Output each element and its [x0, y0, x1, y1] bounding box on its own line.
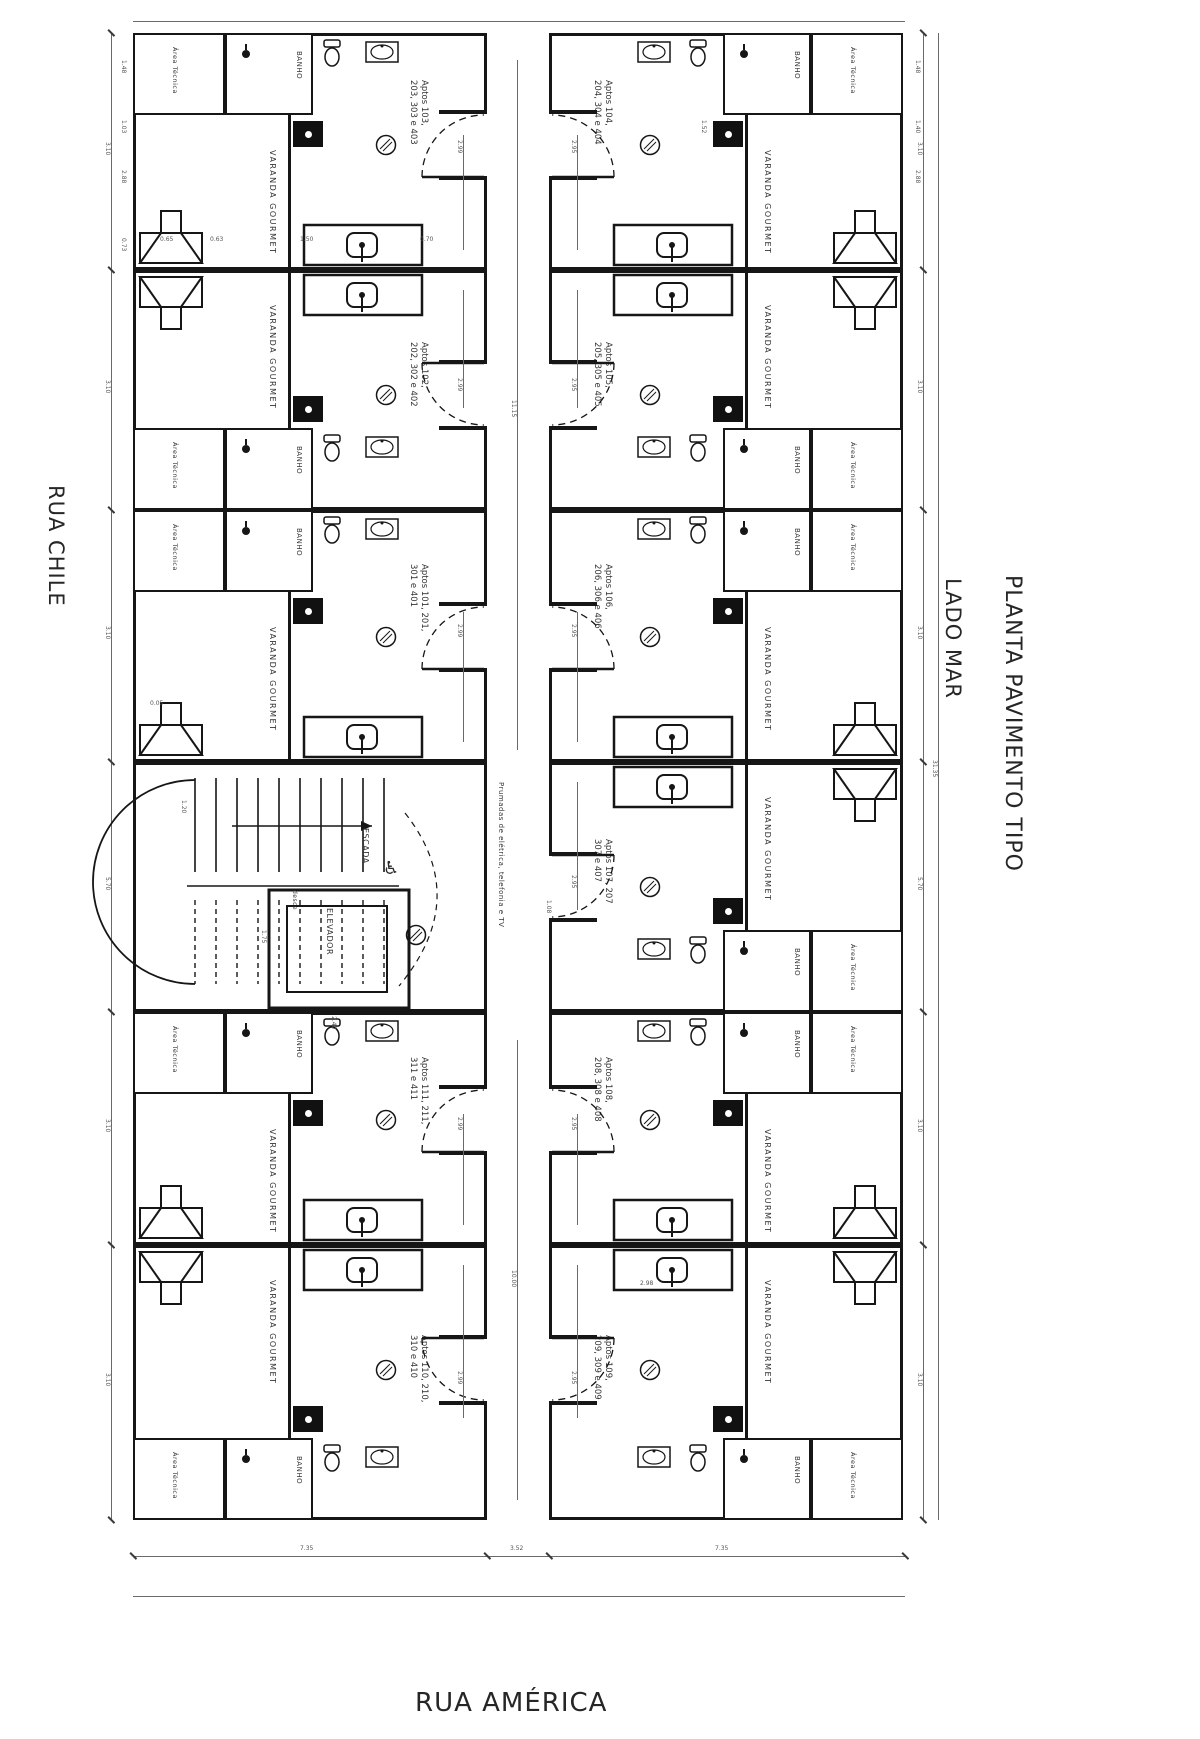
grill-icon: [833, 700, 897, 756]
dim-value-step: 0.73: [120, 238, 127, 251]
area-tecnica-room: [811, 1012, 903, 1094]
counter-sink-icon: [303, 224, 423, 266]
area-tecnica-room: [133, 510, 225, 592]
sink-icon: [637, 1020, 671, 1042]
unit-dim-value: 2.99: [456, 140, 463, 153]
counter-sink-icon: [613, 274, 733, 316]
unit-dim-line: [463, 290, 464, 408]
stairs-elevator-drawing: [137, 768, 487, 1012]
corridor-dim-line-upper: [517, 60, 518, 750]
shower-icon: [239, 438, 253, 454]
area-tecnica-room: [811, 1438, 903, 1520]
area-tecnica-label: Área Técnica: [171, 47, 179, 94]
door-swing-arc: [414, 1085, 484, 1155]
area-tecnica-room: [133, 33, 225, 115]
dim-elev-w: 2.40: [330, 1016, 337, 1029]
area-tecnica-label: Área Técnica: [171, 1452, 179, 1499]
toilet-icon: [687, 936, 709, 966]
side-label-lado-mar: LADO MAR: [941, 578, 965, 699]
shower-icon: [737, 940, 751, 956]
banho-label: BANHO: [295, 1030, 303, 1058]
banho-label: BANHO: [793, 528, 801, 556]
varanda-wall: [745, 762, 748, 930]
area-tecnica-label: Área Técnica: [171, 1026, 179, 1073]
varanda-gourmet-label: VARANDA GOURMET: [763, 797, 772, 901]
dim-value-overall: 31.35: [931, 760, 938, 777]
unit-dim-line: [577, 135, 578, 250]
door-swing-arc: [552, 360, 622, 430]
shaft-box: [713, 396, 743, 422]
unit-dim-value: 2.99: [456, 1371, 463, 1384]
varanda-wall: [288, 592, 291, 762]
varanda-wall: [288, 270, 291, 428]
counter-sink-icon: [613, 1199, 733, 1241]
varanda-gourmet-label: VARANDA GOURMET: [763, 1280, 772, 1384]
dim-value-left: 3.10: [104, 142, 111, 155]
door-tag-icon: [639, 876, 661, 898]
banho-label: BANHO: [295, 446, 303, 474]
dimension-line-bottom2: [133, 1596, 905, 1597]
door-swing-arc: [414, 1335, 484, 1405]
shower-icon: [239, 1022, 253, 1038]
sink-icon: [637, 518, 671, 540]
varanda-gourmet-label: VARANDA GOURMET: [268, 1129, 277, 1233]
varanda-wall: [745, 1094, 748, 1245]
dim-counter: 1.50: [300, 236, 313, 243]
dimension-line-top: [133, 21, 905, 22]
shaft-box: [713, 598, 743, 624]
dim-mid: 2.98: [640, 1280, 653, 1287]
grill-icon: [833, 276, 897, 332]
unit-dim-value: 2.99: [456, 1117, 463, 1130]
unit-dim-line: [577, 1114, 578, 1225]
door-swing-arc: [414, 110, 484, 180]
sink-icon: [365, 41, 399, 63]
area-tecnica-room: [133, 428, 225, 510]
area-tecnica-room: [811, 930, 903, 1012]
dim-value-tec-r: 1.40: [914, 120, 921, 133]
banho-label: BANHO: [295, 51, 303, 79]
counter-sink-icon: [613, 766, 733, 808]
shaft-box: [293, 598, 323, 624]
varanda-wall: [288, 115, 291, 270]
dim-value-left: 5.70: [104, 877, 111, 890]
area-tecnica-room: [133, 1012, 225, 1094]
dim-elev-d: 1.75: [260, 930, 267, 943]
sink-icon: [637, 938, 671, 960]
door-tag-icon: [375, 626, 397, 648]
toilet-icon: [687, 516, 709, 546]
riser-note: Prumadas de elétrica, telefonia e TV: [497, 782, 505, 927]
shaft-box: [713, 121, 743, 147]
unit-dim-line: [577, 290, 578, 408]
dimension-line-bottom: [133, 1556, 905, 1557]
corridor-dim-line-lower: [517, 1040, 518, 1500]
unit-dim-value: 2.95: [570, 624, 577, 637]
shaft-box: [713, 1406, 743, 1432]
shower-icon: [737, 520, 751, 536]
counter-sink-icon: [303, 1199, 423, 1241]
corridor-dim-b: 10.00: [510, 1270, 517, 1287]
varanda-gourmet-label: VARANDA GOURMET: [763, 305, 772, 409]
grill-icon: [833, 208, 897, 264]
shower-icon: [737, 1448, 751, 1464]
shaft-box: [293, 396, 323, 422]
area-tecnica-room: [811, 33, 903, 115]
toilet-icon: [321, 434, 343, 464]
door-tag-icon: [639, 134, 661, 156]
counter-sink-icon: [613, 1249, 733, 1291]
unit-dim-value: 2.95: [570, 140, 577, 153]
sink-icon: [637, 1446, 671, 1468]
shaft-box: [713, 1100, 743, 1126]
dim-value-left: 3.10: [104, 1119, 111, 1132]
area-tecnica-room: [811, 510, 903, 592]
varanda-gourmet-label: VARANDA GOURMET: [763, 1129, 772, 1233]
dim-grill-edge: 0.65: [160, 236, 173, 243]
door-tag-icon: [375, 1109, 397, 1131]
unit-dim-line: [577, 782, 578, 910]
shower-icon: [737, 1022, 751, 1038]
corridor-dim-a: 11.15: [510, 400, 517, 417]
dim-bottom-right: 7.35: [715, 1545, 728, 1552]
door-swing-arc: [552, 110, 622, 180]
dim-value-varanda: 2.88: [120, 170, 127, 183]
door-tag-icon: [639, 384, 661, 406]
dim-banho: 1.52: [700, 120, 707, 133]
banho-label: BANHO: [793, 948, 801, 976]
stair-label: ESCADA: [361, 828, 370, 864]
unit-dim-line: [577, 612, 578, 742]
shower-icon: [737, 438, 751, 454]
door-swing-arc: [414, 602, 484, 672]
dim-value-service-r: 1.48: [914, 60, 921, 73]
area-tecnica-label: Área Técnica: [849, 1026, 857, 1073]
varanda-gourmet-label: VARANDA GOURMET: [268, 305, 277, 409]
grill-icon: [139, 1251, 203, 1307]
banho-label: BANHO: [295, 1456, 303, 1484]
dim-stair: 1.20: [180, 800, 187, 813]
drawing-title: PLANTA PAVIMENTO TIPO: [1000, 575, 1025, 872]
area-tecnica-label: Área Técnica: [849, 944, 857, 991]
sink-icon: [637, 436, 671, 458]
shaft-box: [293, 121, 323, 147]
dim-value-left: 3.10: [104, 380, 111, 393]
area-tecnica-label: Área Técnica: [849, 1452, 857, 1499]
door-swing-arc: [552, 1085, 622, 1155]
counter-sink-icon: [303, 274, 423, 316]
unit-dim-value: 2.99: [456, 378, 463, 391]
counter-sink-icon: [613, 224, 733, 266]
banho-label: BANHO: [793, 51, 801, 79]
door-swing-arc: [552, 602, 622, 672]
sink-icon: [365, 436, 399, 458]
unit-dim-line: [577, 1265, 578, 1418]
shower-icon: [239, 43, 253, 59]
varanda-wall: [745, 115, 748, 270]
varanda-wall: [745, 1245, 748, 1438]
unit-dim-line: [463, 1265, 464, 1418]
varanda-gourmet-label: VARANDA GOURMET: [763, 150, 772, 254]
dimension-line-right: [923, 33, 924, 1520]
banho-label: BANHO: [793, 1456, 801, 1484]
sink-icon: [365, 518, 399, 540]
door-tag-icon: [639, 626, 661, 648]
dim-value-right: 5.70: [916, 877, 923, 890]
banho-label: BANHO: [793, 446, 801, 474]
door-tag-icon: [375, 384, 397, 406]
toilet-icon: [687, 39, 709, 69]
area-tecnica-label: Área Técnica: [849, 47, 857, 94]
dimension-line-right-overall: [938, 33, 939, 1520]
area-tecnica-room: [811, 428, 903, 510]
dim-note: 1.08: [545, 900, 552, 913]
unit-dim-value: 2.95: [570, 1371, 577, 1384]
varanda-wall: [288, 1245, 291, 1438]
dim-value-right: 3.10: [916, 380, 923, 393]
dim-bottom-left: 7.35: [300, 1545, 313, 1552]
dim-value-right: 3.10: [916, 1373, 923, 1386]
area-tecnica-room: [133, 1438, 225, 1520]
dim-landing: 0.05: [150, 700, 163, 707]
door-swing-arc: [552, 1335, 622, 1405]
counter-sink-icon: [303, 716, 423, 758]
area-tecnica-label: Área Técnica: [171, 442, 179, 489]
banho-label: BANHO: [295, 528, 303, 556]
door-swing-arc: [414, 360, 484, 430]
toilet-icon: [321, 39, 343, 69]
dim-value-varanda-r: 2.88: [914, 170, 921, 183]
unit-dim-line: [463, 135, 464, 250]
shower-icon: [239, 520, 253, 536]
unit-dim-line: [463, 612, 464, 742]
shower-icon: [737, 43, 751, 59]
dim-counter-gap: 0.70: [420, 236, 433, 243]
counter-sink-icon: [303, 1249, 423, 1291]
door-tag-icon: [639, 1359, 661, 1381]
elevator-label: ELEVADOR: [325, 908, 334, 955]
sink-icon: [637, 41, 671, 63]
dim-value-service: 1.48: [120, 60, 127, 73]
varanda-gourmet-label: VARANDA GOURMET: [268, 627, 277, 731]
varanda-gourmet-label: VARANDA GOURMET: [268, 150, 277, 254]
stair-direction-label: desce: [291, 890, 298, 910]
grill-icon: [139, 700, 203, 756]
unit-dim-value: 2.95: [570, 378, 577, 391]
dim-value-right: 3.10: [916, 626, 923, 639]
varanda-gourmet-label: VARANDA GOURMET: [268, 1280, 277, 1384]
dim-value-left: 3.10: [104, 1373, 111, 1386]
varanda-wall: [745, 270, 748, 428]
door-swing-arc: [552, 852, 622, 922]
door-tag-icon: [405, 924, 427, 946]
grill-icon: [833, 1183, 897, 1239]
area-tecnica-label: Área Técnica: [171, 524, 179, 571]
street-label-rua-chile: RUA CHILE: [44, 485, 68, 607]
varanda-gourmet-label: VARANDA GOURMET: [763, 627, 772, 731]
dim-value-right: 3.10: [916, 1119, 923, 1132]
grill-icon: [833, 768, 897, 824]
dim-grill: 0.63: [210, 236, 223, 243]
door-tag-icon: [375, 1359, 397, 1381]
varanda-wall: [288, 1094, 291, 1245]
dimension-line-left: [111, 33, 112, 1520]
unit-dim-line: [463, 1114, 464, 1225]
unit-dim-value: 2.95: [570, 1117, 577, 1130]
wheelchair-icon: ♿: [383, 858, 399, 879]
area-tecnica-label: Área Técnica: [849, 524, 857, 571]
shaft-box: [713, 898, 743, 924]
floor-plan: RUA CHILE LADO MAR PLANTA PAVIMENTO TIPO…: [0, 0, 1200, 1739]
toilet-icon: [687, 1444, 709, 1474]
unit-dim-value: 2.99: [456, 624, 463, 637]
shaft-box: [293, 1406, 323, 1432]
grill-icon: [139, 1183, 203, 1239]
varanda-wall: [745, 592, 748, 762]
street-label-rua-america: RUA AMÉRICA: [415, 1688, 607, 1718]
toilet-icon: [321, 1444, 343, 1474]
toilet-icon: [687, 434, 709, 464]
area-tecnica-label: Área Técnica: [849, 442, 857, 489]
door-tag-icon: [375, 134, 397, 156]
dim-value-right: 3.10: [916, 142, 923, 155]
sink-icon: [365, 1446, 399, 1468]
shaft-box: [293, 1100, 323, 1126]
toilet-icon: [321, 516, 343, 546]
dim-value-shaft: 1.03: [120, 120, 127, 133]
shower-icon: [239, 1448, 253, 1464]
door-tag-icon: [639, 1109, 661, 1131]
grill-icon: [833, 1251, 897, 1307]
counter-sink-icon: [613, 716, 733, 758]
grill-icon: [139, 276, 203, 332]
toilet-icon: [687, 1018, 709, 1048]
sink-icon: [365, 1020, 399, 1042]
dim-value-left: 3.10: [104, 626, 111, 639]
dim-bottom-mid: 3.52: [510, 1545, 523, 1552]
banho-label: BANHO: [793, 1030, 801, 1058]
unit-dim-value: 2.95: [570, 875, 577, 888]
